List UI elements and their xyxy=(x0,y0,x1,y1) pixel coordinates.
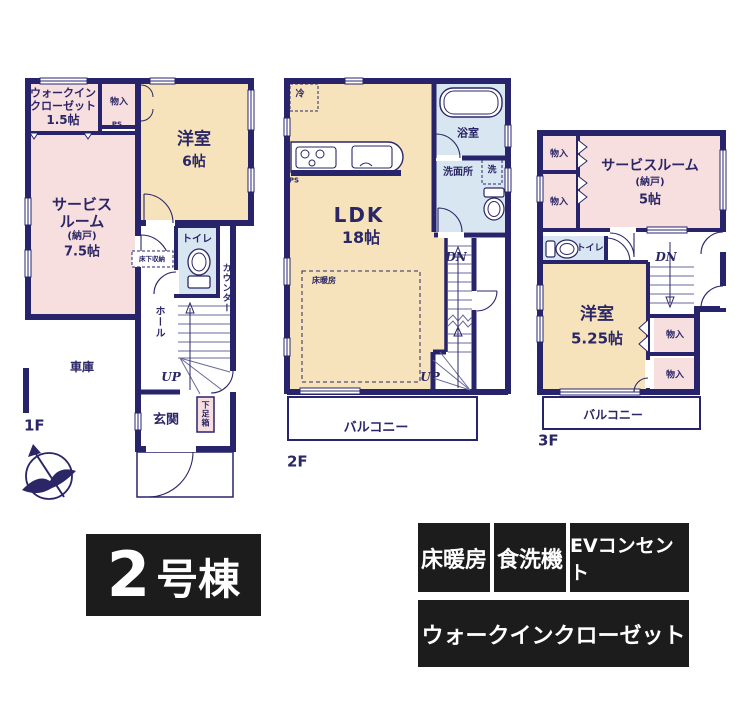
service-room-label-line2-1f: ルーム xyxy=(60,215,105,230)
western-room-size-3f: 5.25帖 xyxy=(571,332,623,347)
balcony-label-2f: バルコニー xyxy=(344,422,409,435)
building-number-suffix: 号棟 xyxy=(156,549,240,601)
service-room-size-3f: 5帖 xyxy=(639,194,661,207)
closet-label-3f-a: 物入 xyxy=(550,151,568,160)
floor-heating-label: 床暖房 xyxy=(312,277,336,285)
dn-label-2f: DN xyxy=(445,251,466,263)
building-number-badge: 2 号棟 xyxy=(86,534,261,616)
feature-tag-walk-in-closet: ウォークインクローゼット xyxy=(418,600,689,667)
service-room-label-line1-1f: サービス xyxy=(52,198,112,213)
western-room-label-3f: 洋室 xyxy=(580,307,614,324)
entrance-label: 玄関 xyxy=(153,414,179,427)
washroom-label: 洗面所 xyxy=(443,168,473,178)
service-room-label-3f: サービスルーム xyxy=(601,159,699,173)
feature-tag-ev-outlet: EVコンセント xyxy=(570,523,689,592)
bathroom-label: 浴室 xyxy=(457,128,479,139)
closet-label-3f-b: 物入 xyxy=(550,199,568,208)
up-label-1f: UP xyxy=(161,371,181,383)
ldk-label: LDK xyxy=(334,205,385,225)
wic-label-line2: クローゼット xyxy=(30,101,96,112)
floor-plan-3f xyxy=(537,133,726,429)
toilet-label-3f: トイレ xyxy=(576,245,603,254)
floor-plan-page: ウォークイン クローゼット 1.5帖 物入 PS 洋室 6帖 サービス ルーム … xyxy=(0,0,735,714)
closet-label-1f: 物入 xyxy=(110,99,128,108)
feature-tag-floor-heating: 床暖房 xyxy=(418,523,490,592)
toilet-icon-3f xyxy=(546,240,578,258)
ps-label-1f: PS xyxy=(112,122,122,129)
garage-label: 車庫 xyxy=(70,361,94,373)
ldk-size-label: 18帖 xyxy=(342,230,380,246)
floor-label-3f: 3F xyxy=(538,434,559,449)
floor-label-1f: 1F xyxy=(24,419,45,434)
western-room-label-1f: 洋室 xyxy=(177,132,211,149)
shoe-box-label: 下足箱 xyxy=(201,401,209,428)
dn-label-3f: DN xyxy=(655,251,676,263)
fridge-label: 冷 xyxy=(295,91,304,100)
building-number: 2 xyxy=(107,544,150,606)
washer-label: 洗 xyxy=(487,167,496,176)
service-room-label2-3f: (納戸) xyxy=(635,178,664,188)
compass-icon xyxy=(22,444,76,499)
ps-label-2f: PS xyxy=(289,178,299,185)
service-room-label-line3-1f: (納戸) xyxy=(67,232,96,242)
closet-label-3f-c: 物入 xyxy=(666,332,684,341)
underfloor-storage-label: 床下収納 xyxy=(139,256,165,263)
toilet-icon-1f xyxy=(188,249,210,288)
closet-label-3f-d: 物入 xyxy=(666,372,684,381)
toilet-icon-2f xyxy=(484,188,504,220)
wic-label-line1: ウォークイン xyxy=(30,88,96,99)
feature-tag-dishwasher: 食洗機 xyxy=(494,523,566,592)
service-room-size-1f: 7.5帖 xyxy=(64,246,100,259)
bathtub-icon xyxy=(440,88,502,117)
kitchen-icon xyxy=(291,142,403,176)
hall-label: ホール xyxy=(153,306,163,339)
western-room-size-1f: 6帖 xyxy=(182,155,206,169)
wic-size-label: 1.5帖 xyxy=(46,114,79,126)
up-label-2f: UP xyxy=(420,371,440,383)
balcony-label-3f: バルコニー xyxy=(583,409,643,421)
floor-label-2f: 2F xyxy=(287,455,308,470)
toilet-label-1f: トイレ xyxy=(182,235,212,245)
counter-label: カウンター xyxy=(221,263,230,313)
